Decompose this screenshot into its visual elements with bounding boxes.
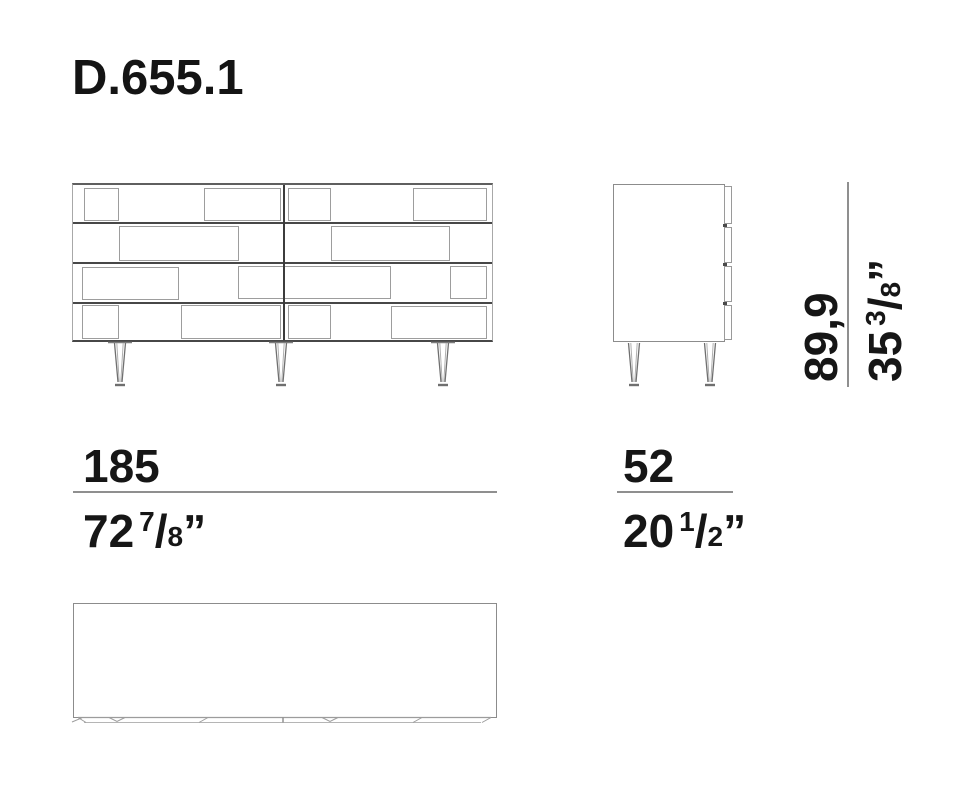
drawer-panel xyxy=(119,226,239,261)
width-metric-value: 185 xyxy=(73,442,497,491)
drawer-panel xyxy=(288,188,331,221)
fraction-slash: / xyxy=(155,505,168,557)
imperial-whole: 20 xyxy=(623,505,674,557)
drawer-panel xyxy=(82,267,179,300)
drawer-panel xyxy=(238,266,391,299)
center-split-line xyxy=(283,185,285,340)
fraction-denominator: 8 xyxy=(875,282,906,298)
height-imperial-value: 353/8” xyxy=(849,182,915,387)
depth-metric-value: 52 xyxy=(617,442,733,491)
drawer-gap-tick xyxy=(723,302,727,305)
side-drawer-edge xyxy=(724,186,732,224)
imperial-whole: 72 xyxy=(83,505,134,557)
side-drawer-edge xyxy=(724,266,732,302)
side-elevation-view xyxy=(613,184,725,342)
fraction-numerator: 7 xyxy=(139,506,155,537)
side-front-leg xyxy=(620,341,648,389)
spec-sheet: D.655.1 xyxy=(0,0,970,786)
fraction-slash: / xyxy=(695,505,708,557)
drawer-panel xyxy=(288,305,331,339)
side-drawer-edge xyxy=(724,227,732,263)
imperial-whole: 35 xyxy=(859,331,911,382)
fraction-numerator: 3 xyxy=(860,310,891,326)
drawer-gap-tick xyxy=(723,263,727,266)
side-drawer-edge xyxy=(724,305,732,340)
drawer-panel xyxy=(204,188,281,221)
inch-mark: ” xyxy=(183,505,206,557)
front-elevation-view xyxy=(72,183,493,342)
inch-mark: ” xyxy=(723,505,746,557)
drawer-panel xyxy=(84,188,119,221)
fraction-denominator: 8 xyxy=(168,521,184,552)
width-dimension: 185 727/8” xyxy=(73,442,497,561)
fraction-denominator: 2 xyxy=(708,521,724,552)
front-left-leg xyxy=(106,341,134,389)
plan-drawer-edge-strip xyxy=(68,715,500,727)
front-right-leg xyxy=(429,341,457,389)
depth-dimension: 52 201/2” xyxy=(617,442,733,561)
side-back-leg xyxy=(696,341,724,389)
product-code-title: D.655.1 xyxy=(72,50,244,106)
height-metric-value: 89,9 xyxy=(797,182,847,387)
width-imperial-value: 727/8” xyxy=(73,493,497,561)
drawer-gap-tick xyxy=(723,224,727,227)
drawer-panel xyxy=(82,305,119,339)
drawer-panel xyxy=(450,266,487,299)
height-dimension: 89,9 353/8” xyxy=(797,182,915,387)
drawer-panel xyxy=(331,226,450,261)
fraction-numerator: 1 xyxy=(679,506,695,537)
plan-view xyxy=(73,603,497,718)
drawer-panel xyxy=(413,188,487,221)
front-center-leg xyxy=(267,341,295,389)
drawer-panel xyxy=(391,306,487,339)
inch-mark: ” xyxy=(859,259,911,282)
depth-imperial-value: 201/2” xyxy=(617,493,733,561)
drawer-panel xyxy=(181,305,281,339)
fraction-slash: / xyxy=(859,297,911,310)
